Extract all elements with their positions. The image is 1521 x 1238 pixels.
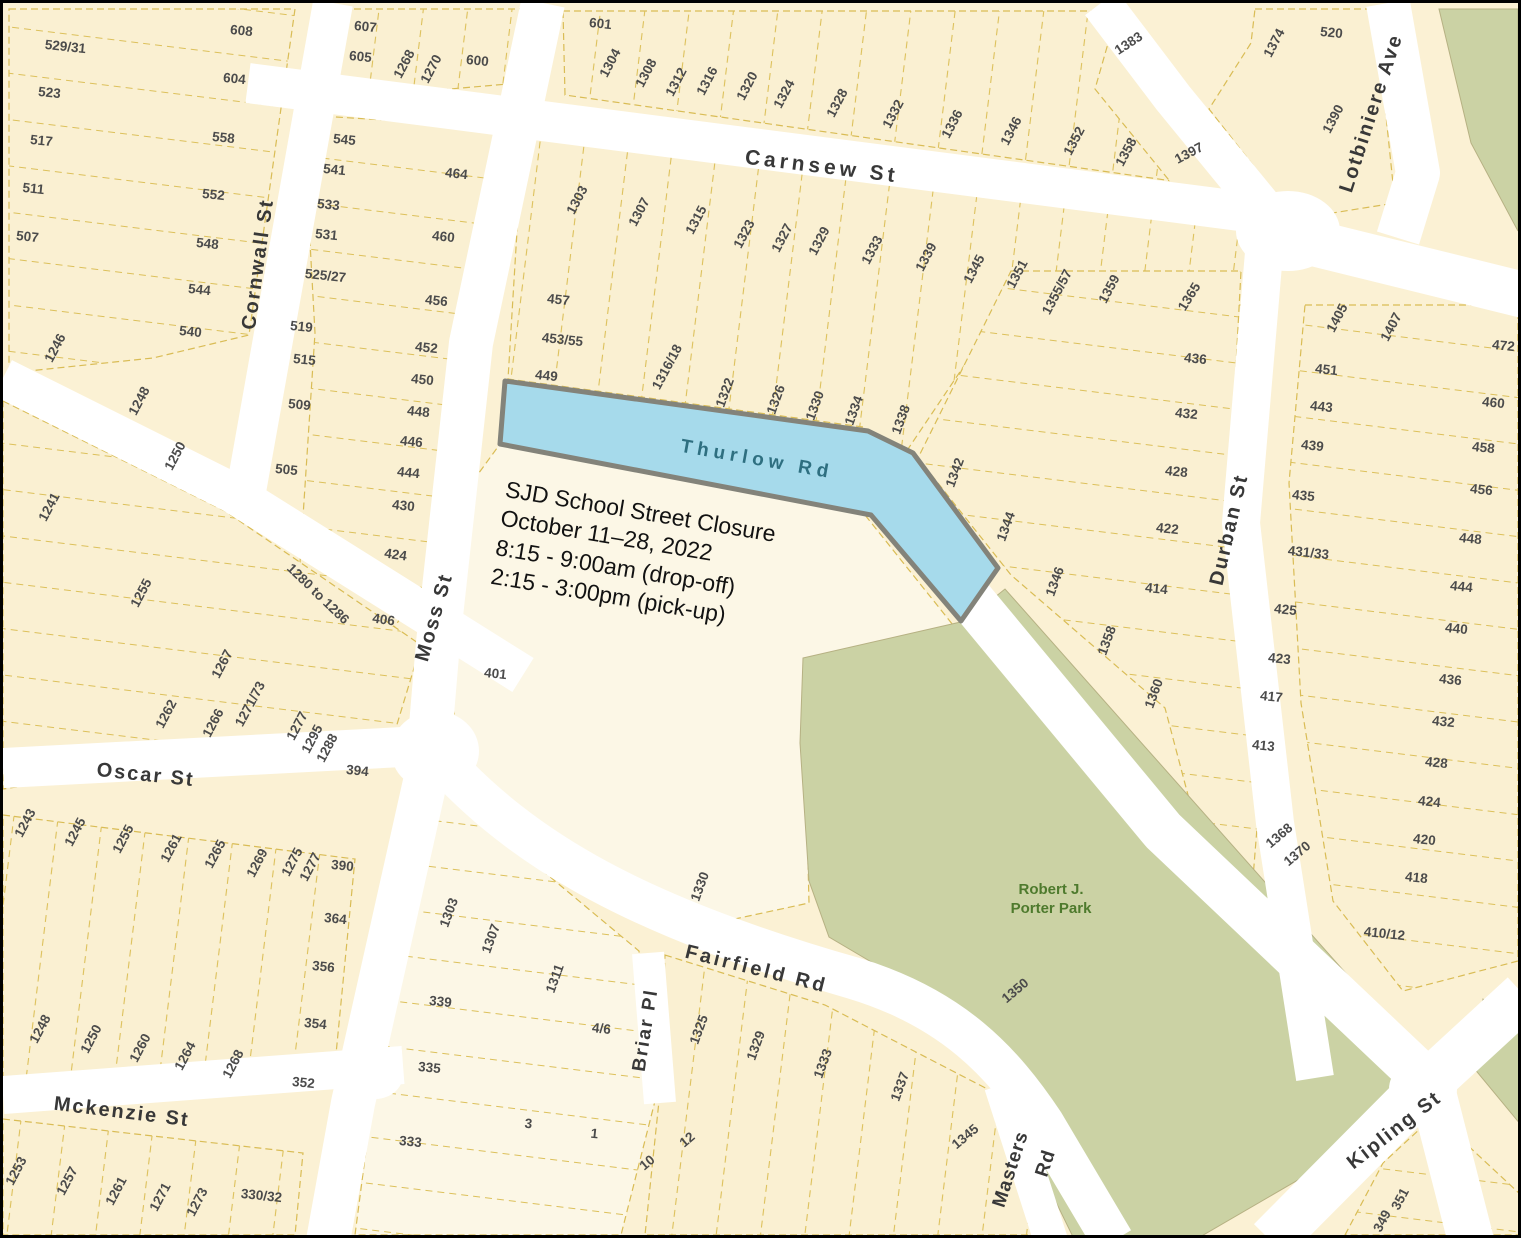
lot-label-600: 600 — [465, 52, 489, 69]
lot-label-472: 472 — [1491, 337, 1515, 354]
park-area-topright — [1439, 9, 1518, 231]
lot-label-464: 464 — [444, 165, 468, 182]
park-name-label: Robert J. Porter Park — [971, 881, 1131, 919]
lot-label-456: 456 — [424, 292, 448, 309]
lot-label-390: 390 — [330, 857, 354, 874]
lot-label-440: 440 — [1444, 620, 1468, 637]
lot-label-545: 545 — [332, 131, 356, 148]
park-name-line-2: Porter Park — [971, 900, 1131, 919]
lot-label-608: 608 — [229, 22, 253, 39]
lot-label-417: 417 — [1259, 688, 1283, 705]
lot-label-450: 450 — [410, 371, 434, 388]
lot-label-558: 558 — [211, 129, 235, 146]
lot-label-333: 333 — [398, 1133, 422, 1150]
lot-label-432: 432 — [1431, 713, 1455, 730]
lot-label-422: 422 — [1155, 520, 1179, 537]
lot-label-444: 444 — [396, 464, 420, 481]
lot-label-424: 424 — [1417, 793, 1441, 810]
lot-label-1248: 1248 — [125, 384, 153, 418]
lot-label-540: 540 — [178, 323, 202, 340]
junction — [1236, 191, 1340, 271]
lot-label-460: 460 — [1481, 394, 1505, 411]
lot-label-446: 446 — [399, 433, 423, 450]
lot-label-449: 449 — [534, 367, 558, 384]
junction — [391, 711, 479, 791]
lot-label-428: 428 — [1424, 754, 1448, 771]
lot-label-605: 605 — [348, 48, 372, 65]
lot-label-356: 356 — [311, 958, 335, 975]
lot-label-335: 335 — [417, 1059, 441, 1076]
lot-label-607: 607 — [353, 18, 377, 35]
lot-label-418: 418 — [1404, 869, 1428, 886]
lot-label-406: 406 — [371, 611, 396, 629]
lot-label-604: 604 — [222, 70, 246, 87]
lot-label-432: 432 — [1174, 405, 1198, 422]
lot-label-541: 541 — [322, 161, 346, 178]
lot-label-456: 456 — [1469, 481, 1493, 498]
park-name-line-1: Robert J. — [971, 881, 1131, 900]
lot-label-448: 448 — [1458, 530, 1482, 547]
lot-label-428: 428 — [1164, 463, 1188, 480]
lot-label-354: 354 — [303, 1015, 327, 1032]
lot-label-439: 439 — [1300, 437, 1324, 454]
lot-label-414: 414 — [1144, 580, 1168, 597]
lot-label-457: 457 — [546, 291, 570, 308]
lot-label-531: 531 — [314, 226, 338, 243]
street-closure-map: 529/315235175115076086045585525485445401… — [0, 0, 1521, 1238]
lot-label-511: 511 — [22, 180, 46, 197]
lot-label-452: 452 — [414, 339, 438, 356]
lot-label-509: 509 — [287, 396, 311, 413]
lot-label-458: 458 — [1471, 439, 1495, 456]
lot-label-525/27: 525/27 — [304, 266, 347, 285]
lot-label-515: 515 — [292, 351, 316, 368]
lot-label-444: 444 — [1449, 578, 1473, 595]
lot-label-430: 430 — [391, 497, 415, 514]
lot-label-552: 552 — [201, 186, 225, 203]
lot-label-520: 520 — [1319, 24, 1343, 41]
lot-label-352: 352 — [291, 1074, 315, 1091]
lot-label-436: 436 — [1438, 671, 1462, 688]
lot-label-533: 533 — [316, 196, 340, 213]
lot-label-548: 548 — [195, 235, 219, 252]
lot-label-451: 451 — [1314, 361, 1338, 378]
street-oscar-st — [3, 745, 441, 768]
lot-label-523: 523 — [37, 84, 61, 101]
lot-label-460: 460 — [431, 228, 455, 245]
lot-label-364: 364 — [323, 910, 347, 927]
lot-label-507: 507 — [15, 228, 39, 245]
lot-label-423: 423 — [1267, 650, 1291, 667]
lot-label-443: 443 — [1309, 398, 1333, 415]
lot-label-339: 339 — [428, 993, 452, 1010]
lot-label-424: 424 — [383, 546, 408, 564]
city-block — [3, 1119, 303, 1235]
lot-label-544: 544 — [187, 281, 211, 298]
lot-label-505: 505 — [274, 461, 298, 478]
lot-label-4/6: 4/6 — [591, 1020, 612, 1037]
junction — [347, 1051, 403, 1099]
lot-label-425: 425 — [1273, 601, 1297, 618]
lot-label-601: 601 — [588, 15, 612, 32]
lot-label-420: 420 — [1412, 831, 1436, 848]
lot-label-401: 401 — [483, 665, 507, 682]
lot-label-394: 394 — [345, 762, 369, 779]
lot-label-448: 448 — [406, 403, 430, 420]
lot-label-435: 435 — [1291, 487, 1315, 504]
lot-label-519: 519 — [289, 318, 313, 335]
lot-label-517: 517 — [29, 132, 53, 149]
lot-label-413: 413 — [1251, 737, 1275, 754]
lot-label-436: 436 — [1183, 350, 1207, 367]
